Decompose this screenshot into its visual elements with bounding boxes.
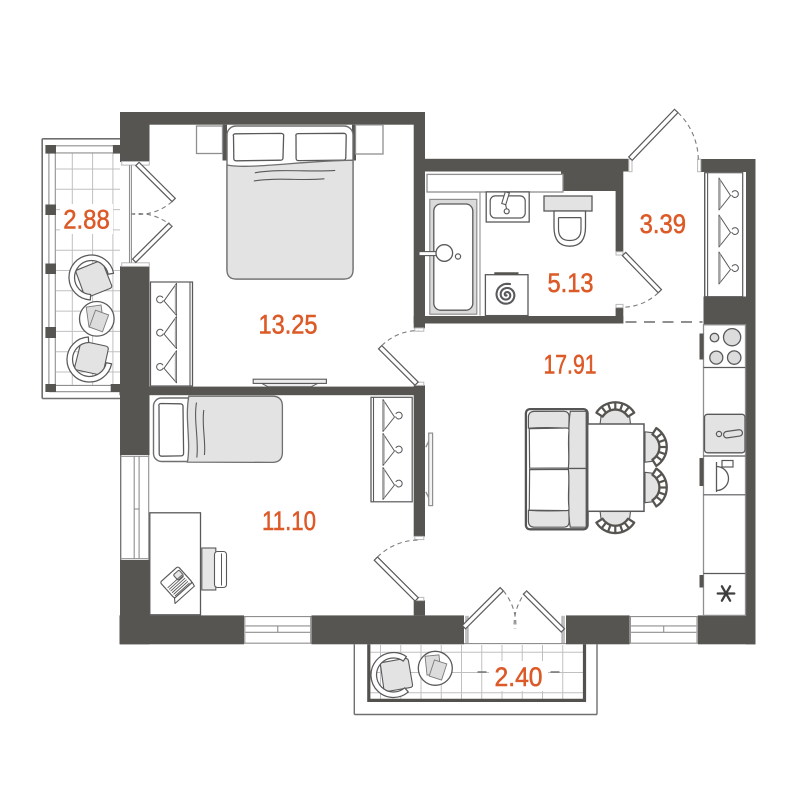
svg-text:17.91: 17.91 xyxy=(544,350,597,380)
svg-text:5.13: 5.13 xyxy=(548,268,594,298)
svg-text:2.88: 2.88 xyxy=(63,205,110,235)
svg-text:11.10: 11.10 xyxy=(262,506,316,536)
svg-text:13.25: 13.25 xyxy=(259,310,318,340)
svg-text:2.40: 2.40 xyxy=(495,662,543,692)
svg-text:3.39: 3.39 xyxy=(640,209,686,239)
